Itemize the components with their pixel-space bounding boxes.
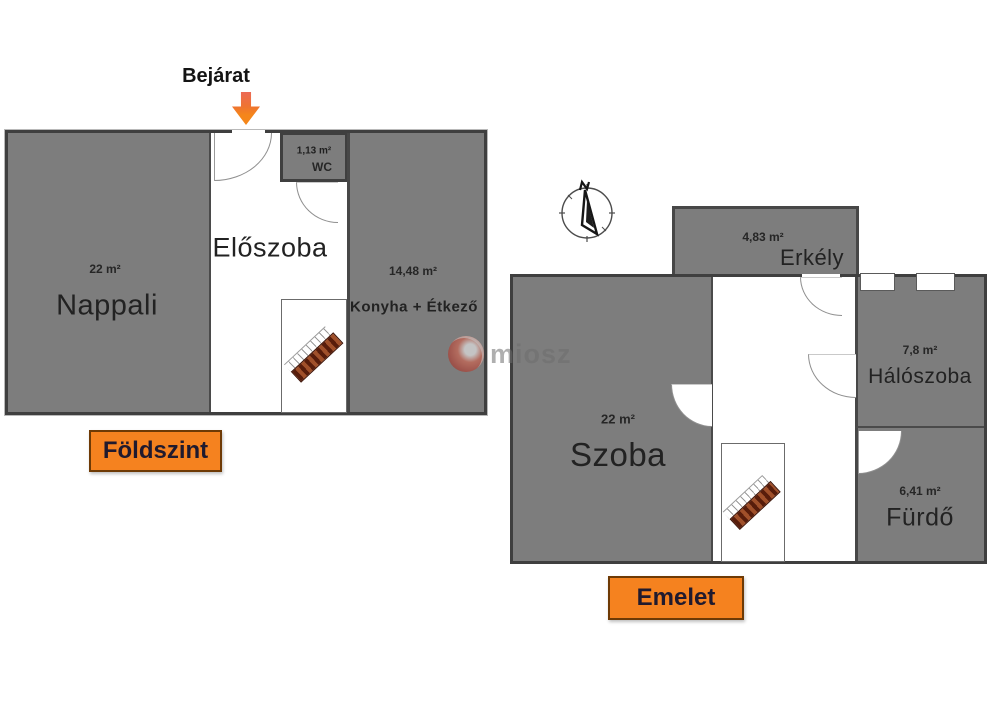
wc-door-arc (296, 182, 338, 223)
balcony-door-arc (800, 277, 842, 316)
ground-floor-tag-label: Földszint (103, 437, 208, 465)
stairs-icon (723, 475, 780, 530)
wc-area-label: 1,13 m² (297, 146, 331, 157)
upper-floor-tag-label: Emelet (637, 584, 716, 612)
eloszoba-name-label: Előszoba (212, 233, 327, 264)
upper-floor-plan: 4,83 m² Erkély (510, 206, 987, 564)
nappali-area-label: 22 m² (89, 262, 120, 276)
furdo-area-label: 6,41 m² (899, 484, 940, 498)
haloszoba-name-label: Hálószoba (868, 365, 972, 389)
konyha-area-label: 14,48 m² (389, 264, 437, 278)
floor-plan-canvas: Bejárat 22 m² Nappali Előszoba 1,13 m² W… (0, 0, 1000, 709)
window-icon (916, 273, 955, 291)
konyha-name-label: Konyha + Étkező (350, 299, 478, 316)
szoba-name-label: Szoba (570, 436, 666, 474)
room-wc (280, 132, 348, 182)
entrance-door-arc (214, 133, 272, 181)
haloszoba-door-arc (808, 354, 856, 398)
ground-floor-tag: Földszint (89, 430, 222, 472)
stairs-icon (284, 326, 342, 382)
upper-floor-outline: 22 m² Szoba 7,8 m² Hálószoba 6,41 m² Für… (510, 274, 987, 564)
stairs-box-ground (281, 299, 347, 413)
haloszoba-area-label: 7,8 m² (903, 343, 938, 357)
nappali-name-label: Nappali (56, 290, 158, 323)
furdo-name-label: Fürdő (886, 504, 954, 533)
stairs-box-upper (721, 443, 785, 562)
erkely-name-label: Erkély (780, 245, 844, 271)
erkely-area-label: 4,83 m² (742, 230, 783, 244)
wc-name-label: WC (312, 160, 332, 174)
szoba-area-label: 22 m² (601, 412, 635, 427)
entrance-label: Bejárat (182, 65, 250, 88)
upper-floor-tag: Emelet (608, 576, 744, 620)
window-icon (860, 273, 895, 291)
entrance-arrow-icon (232, 92, 260, 125)
ground-floor-plan: 22 m² Nappali Előszoba 1,13 m² WC 14,48 … (5, 130, 487, 415)
